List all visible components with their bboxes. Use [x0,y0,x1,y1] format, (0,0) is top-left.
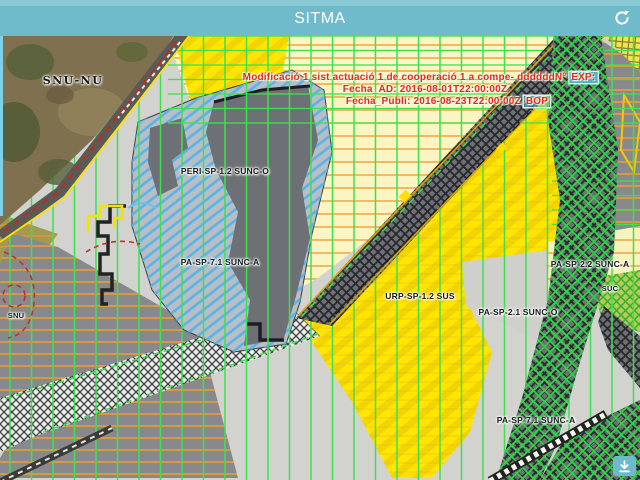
annotation-line2: Fecha_AD: 2016-08-01T22:00:00Z [343,84,507,95]
map-label-pa-sp-71-left: PA-SP-7.1 SUNC-A [181,257,260,267]
annotation-line3: Fecha_Publi: 2016-08-23T22:00:00Z BOP [346,96,550,107]
annotation-line2-text: Fecha_AD: 2016-08-01T22:00:00Z [343,84,507,95]
map-label-peri-sp-12: PERI-SP-1.2 SUNC-O [181,166,269,176]
map-label-pa-sp-22: PA-SP-2.2 SUNC-A [551,259,630,269]
annotation-exp-badge: EXP: [569,72,597,83]
map-label-snu: SNU [8,311,24,320]
annotation-line3-text: Fecha_Publi: 2016-08-23T22:00:00Z [346,96,521,107]
app-title: SITMA [0,10,640,28]
annotation-line1: Modificació 1 sist actuació 1 de coopera… [243,72,598,83]
download-icon [618,460,631,473]
map-label-pa-sp-21: PA-SP-2.1 SUNC-O [478,307,557,317]
refresh-button[interactable] [613,9,631,27]
app-header: SITMA [0,0,640,36]
refresh-icon [616,12,627,23]
header-top-edge [0,0,640,6]
map-label-suc: SUC [602,284,618,293]
annotation-bop-badge: BOP [524,96,550,107]
map-label-pa-sp-71-right: PA-SP-7.1 SUNC-A [497,415,576,425]
map-label-urp-sp-12: URP-SP-1.2 SUS [385,291,454,301]
app-window: SNU-NU PERI-SP-1.2 SUNC-O PA-SP-7.1 SUNC… [0,0,640,480]
download-button[interactable] [613,456,636,476]
map-label-snu-nu: SNU-NU [43,74,104,87]
annotation-line1-text: Modificació 1 sist actuació 1 de coopera… [243,72,567,83]
